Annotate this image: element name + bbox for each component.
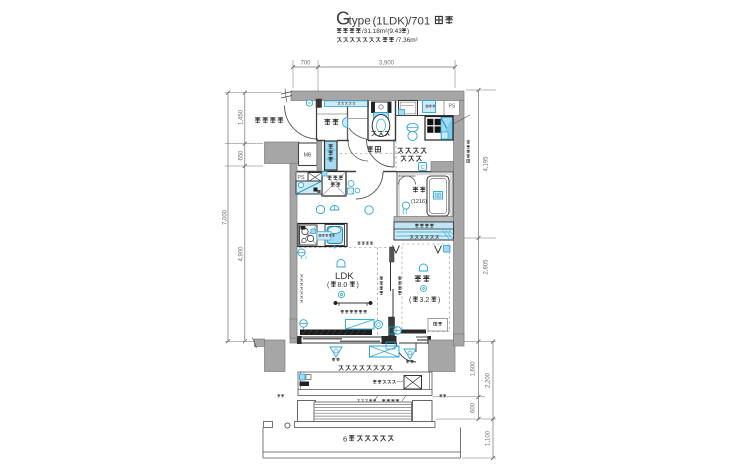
svg-text:650: 650 bbox=[239, 150, 245, 161]
svg-text:): ) bbox=[438, 297, 440, 304]
svg-text:PS: PS bbox=[298, 175, 306, 181]
svg-text:(1216): (1216) bbox=[411, 199, 427, 205]
svg-text:7,000: 7,000 bbox=[223, 209, 229, 225]
svg-text:PS: PS bbox=[449, 104, 456, 110]
svg-text:type: type bbox=[349, 14, 372, 28]
svg-text:3.2: 3.2 bbox=[420, 297, 430, 304]
svg-text:4,900: 4,900 bbox=[239, 246, 245, 262]
svg-text:/701: /701 bbox=[408, 16, 430, 28]
svg-text:/31.18m²(9.43: /31.18m²(9.43 bbox=[362, 28, 402, 35]
svg-text:(: ( bbox=[409, 297, 412, 304]
svg-text:C: C bbox=[421, 165, 425, 171]
svg-text:2,200: 2,200 bbox=[486, 372, 492, 388]
svg-text:LDK: LDK bbox=[335, 271, 354, 282]
svg-text:600: 600 bbox=[471, 402, 477, 413]
svg-text:1,100: 1,100 bbox=[486, 430, 492, 446]
svg-text:700: 700 bbox=[300, 61, 311, 67]
svg-text:(: ( bbox=[327, 282, 330, 289]
svg-text:3,900: 3,900 bbox=[379, 61, 395, 67]
svg-text:1,600: 1,600 bbox=[471, 361, 477, 377]
svg-text:/7.36m²: /7.36m² bbox=[396, 37, 418, 44]
svg-text:): ) bbox=[357, 282, 359, 289]
svg-text:8.0: 8.0 bbox=[338, 282, 348, 289]
svg-text:MB: MB bbox=[304, 153, 312, 159]
svg-text:2: 2 bbox=[305, 256, 307, 260]
svg-text:2,805: 2,805 bbox=[484, 259, 490, 275]
svg-text:1,450: 1,450 bbox=[239, 109, 245, 125]
svg-text:6: 6 bbox=[343, 435, 347, 444]
svg-text:(1LDK): (1LDK) bbox=[373, 16, 409, 28]
svg-text:4,195: 4,195 bbox=[484, 156, 490, 172]
svg-text:): ) bbox=[407, 28, 409, 35]
